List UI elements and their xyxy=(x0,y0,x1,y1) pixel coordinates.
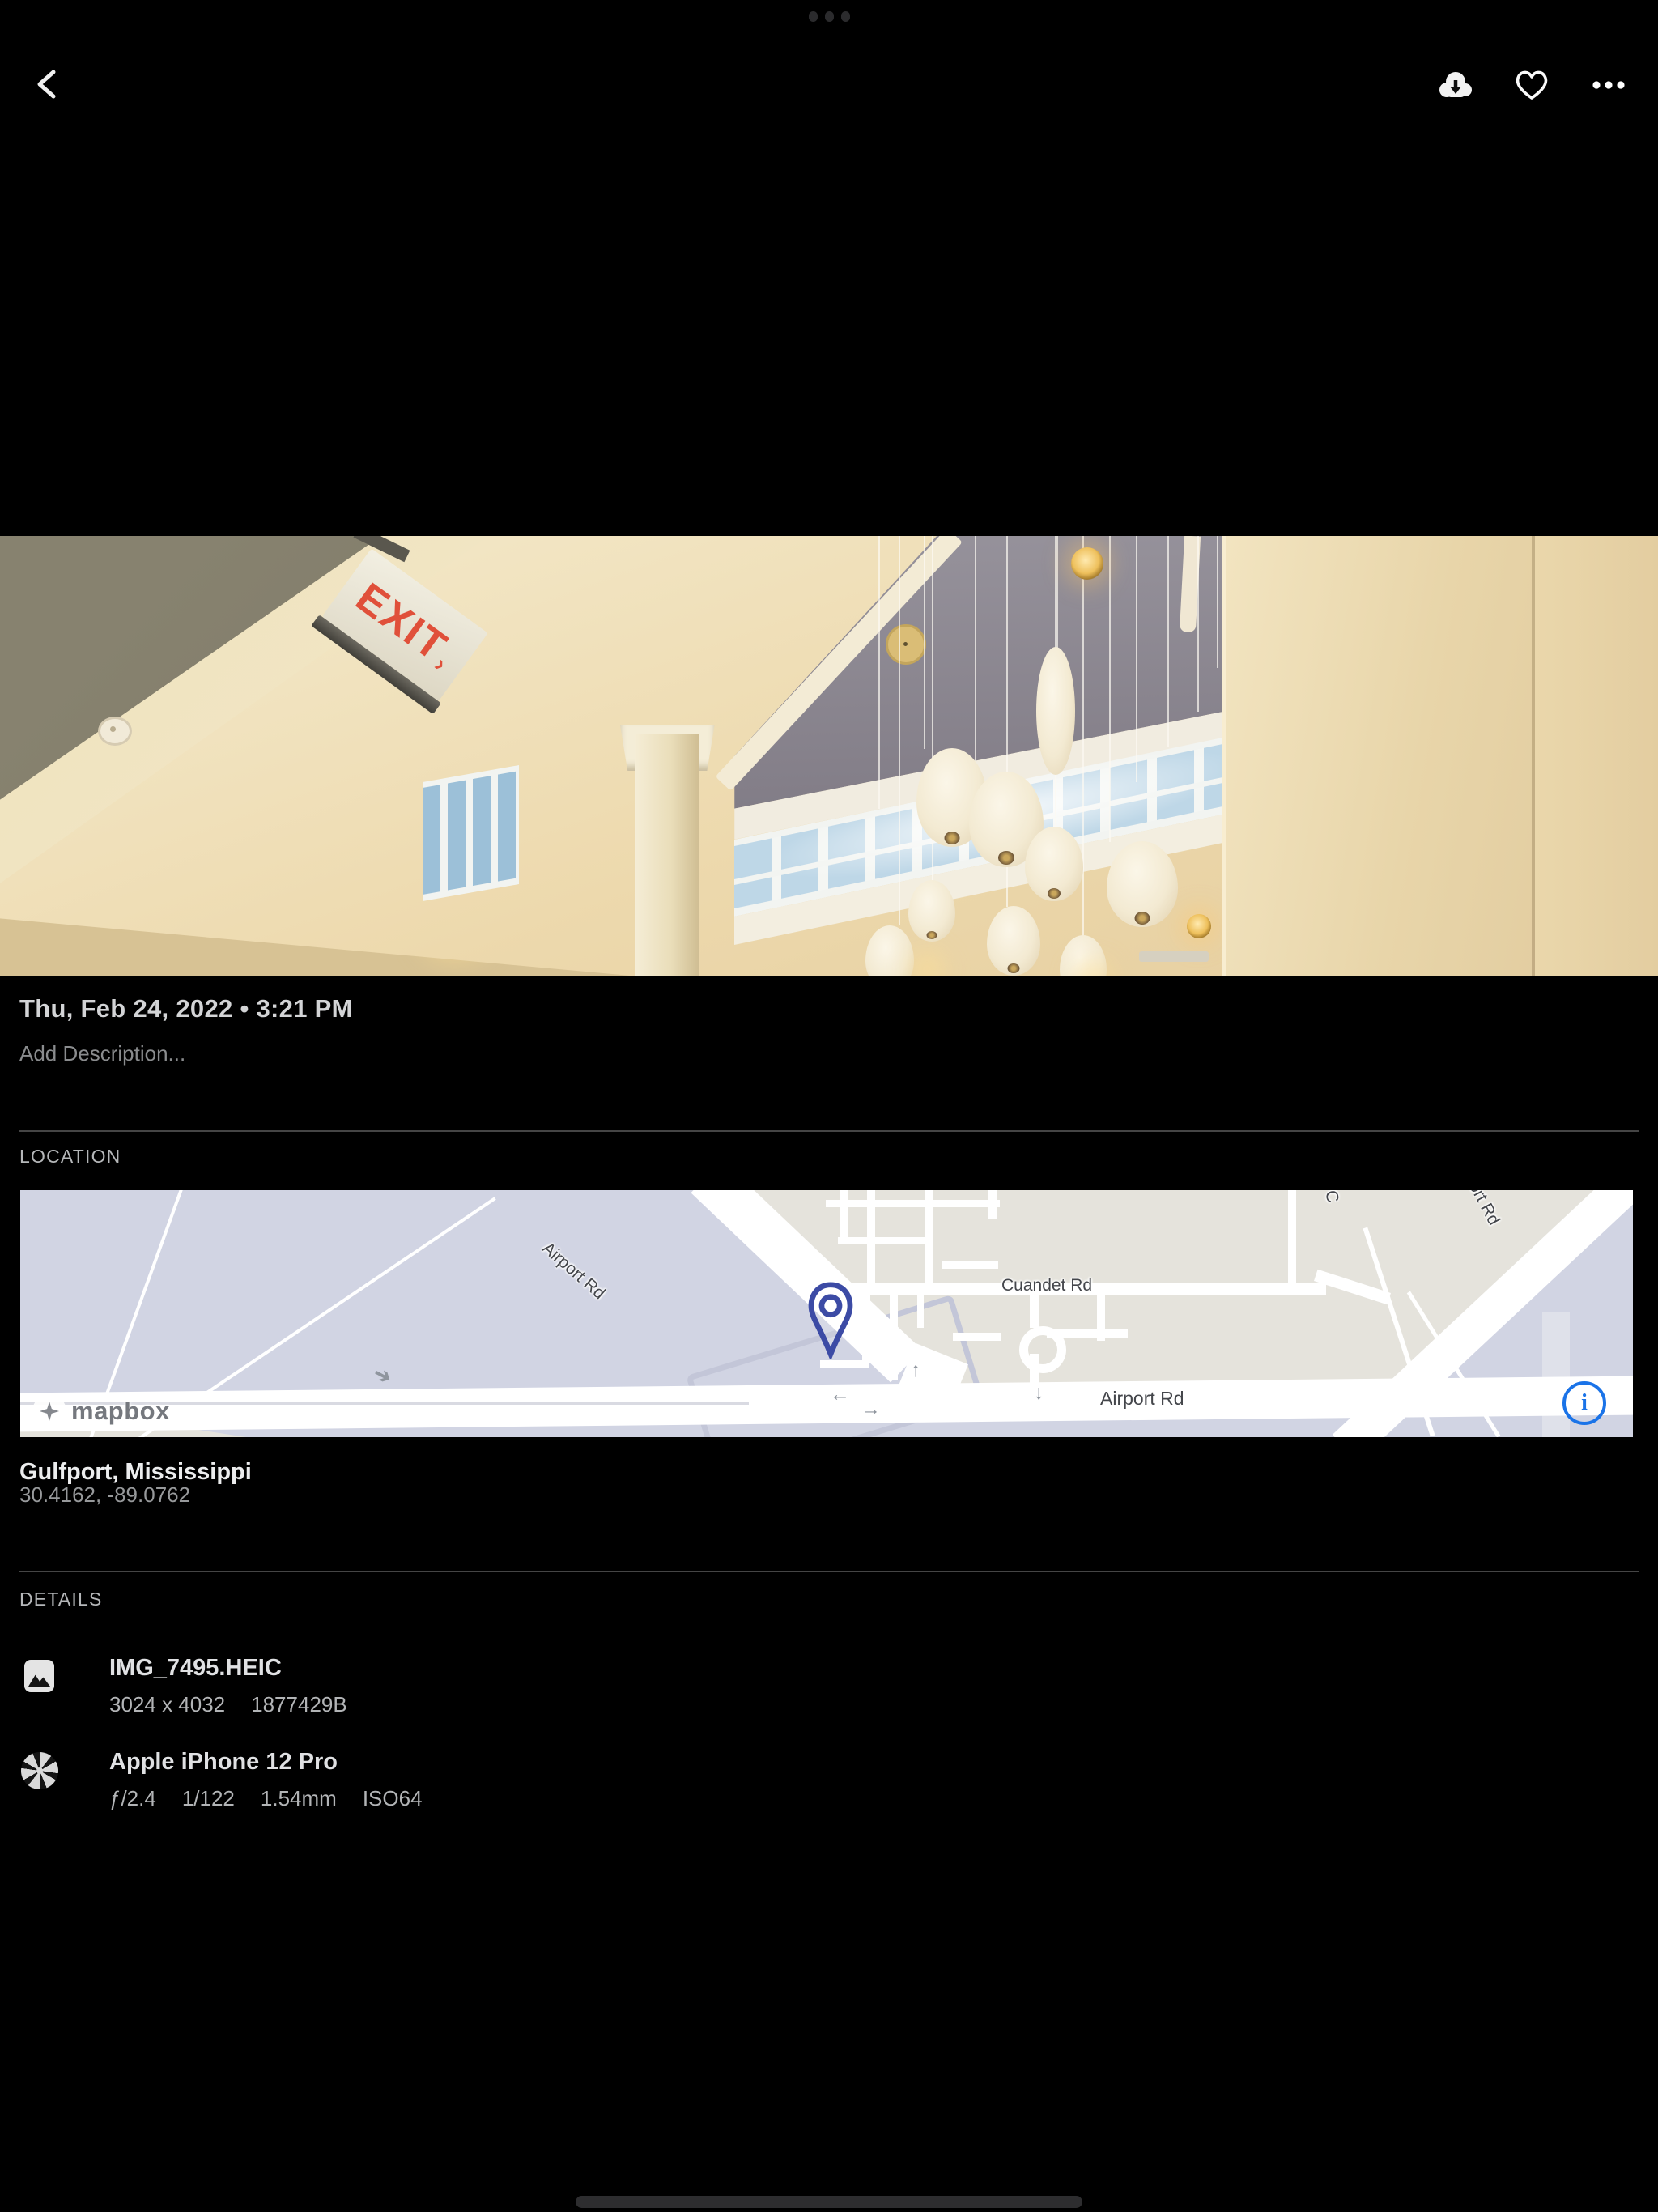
location-coordinates: 30.4162, -89.0762 xyxy=(19,1482,190,1508)
roundabout xyxy=(1019,1326,1066,1373)
camera-iso: ISO64 xyxy=(363,1786,423,1810)
camera-aperture: ƒ/2.4 xyxy=(109,1786,156,1810)
lamp-ring xyxy=(1007,963,1019,973)
info-icon: i xyxy=(1581,1390,1588,1416)
lamp-wire xyxy=(1109,536,1111,842)
camera-meta: ƒ/2.41/1221.54mmISO64 xyxy=(109,1786,449,1811)
street-segment xyxy=(942,1261,998,1269)
map-info-button[interactable]: i xyxy=(1562,1381,1606,1425)
file-dimensions: 3024 x 4032 xyxy=(109,1692,225,1716)
image-file-icon xyxy=(24,1660,54,1692)
home-indicator[interactable] xyxy=(576,2196,1082,2208)
mapbox-logo-icon xyxy=(32,1394,66,1428)
map-path-light xyxy=(1542,1312,1570,1437)
camera-focal: 1.54mm xyxy=(261,1786,337,1810)
back-button[interactable] xyxy=(29,65,68,104)
recessed-light xyxy=(1071,547,1103,580)
street-segment xyxy=(820,1360,869,1368)
street-segment xyxy=(1288,1190,1296,1283)
street-segment xyxy=(890,1295,898,1380)
multitask-dots-icon xyxy=(0,11,1658,22)
lamp-wire xyxy=(1056,536,1058,648)
file-meta: 3024 x 40321877429B xyxy=(109,1692,373,1717)
lamp-wire xyxy=(1167,536,1169,747)
lamp-ring xyxy=(1048,888,1061,899)
pendant-lamp xyxy=(908,880,955,942)
file-name: IMG_7495.HEIC xyxy=(109,1655,282,1682)
aperture-icon xyxy=(21,1752,58,1789)
street-segment xyxy=(838,1237,929,1244)
mapbox-attribution[interactable]: mapbox xyxy=(32,1394,170,1428)
more-options-button[interactable] xyxy=(1589,66,1628,104)
lamp-wire xyxy=(878,536,880,809)
cloud-download-icon xyxy=(1436,66,1475,104)
road-arrow-icon: ↑ xyxy=(911,1359,921,1382)
road-label: Airport Rd xyxy=(538,1239,609,1304)
air-vent xyxy=(1139,951,1209,962)
street-segment xyxy=(840,1190,848,1240)
camera-name: Apple iPhone 12 Pro xyxy=(109,1749,338,1776)
camera-shutter: 1/122 xyxy=(182,1786,235,1810)
pendant-lamp xyxy=(1036,647,1075,775)
photo-date: Thu, Feb 24, 2022 • 3:21 PM xyxy=(19,994,353,1023)
file-size: 1877429B xyxy=(251,1692,347,1716)
lamp-wire xyxy=(975,536,976,772)
road-arrow-icon: ➔ xyxy=(369,1361,396,1390)
divider xyxy=(19,1571,1639,1572)
left-window-strip xyxy=(423,765,519,901)
lamp-wire xyxy=(1082,536,1084,936)
street-segment xyxy=(917,1295,924,1328)
road-label: Airport Rd xyxy=(1100,1388,1184,1410)
chevron-left-icon xyxy=(29,65,68,104)
street-segment xyxy=(826,1200,1000,1207)
location-heading: LOCATION xyxy=(19,1146,121,1168)
description-placeholder[interactable]: Add Description... xyxy=(19,1041,185,1066)
smoke-detector xyxy=(98,717,132,746)
ellipsis-icon xyxy=(1589,66,1628,104)
lamp-wire xyxy=(1217,536,1218,668)
road-arrow-icon: ← xyxy=(830,1383,850,1406)
photo[interactable]: EXIT › xyxy=(0,536,1658,976)
divider xyxy=(19,1130,1639,1132)
photo-far-right-wall xyxy=(1535,536,1658,976)
lamp-wire xyxy=(899,536,900,925)
street-segment xyxy=(1030,1295,1039,1328)
pendant-lamp xyxy=(987,906,1040,976)
download-button[interactable] xyxy=(1436,66,1475,104)
map-pin-icon xyxy=(805,1281,857,1359)
lamp-wire xyxy=(1197,536,1199,712)
column xyxy=(635,734,699,976)
lamp-ring xyxy=(998,851,1014,865)
road-arrow-icon: ↓ xyxy=(1034,1381,1044,1405)
road-label: Cuandet Rd xyxy=(1001,1276,1092,1295)
lamp-ring xyxy=(1135,912,1150,925)
street-segment xyxy=(1097,1295,1105,1341)
favorite-button[interactable] xyxy=(1512,66,1551,104)
lamp-ring xyxy=(927,931,937,939)
road-arrow-icon: → xyxy=(861,1397,881,1421)
ceiling-disc xyxy=(886,624,926,665)
details-heading: DETAILS xyxy=(19,1589,103,1610)
pendant-lamp xyxy=(1107,841,1178,927)
lamp-wire xyxy=(1136,536,1137,782)
street-segment xyxy=(953,1333,1001,1341)
lamp-wire xyxy=(924,536,925,749)
street-segment xyxy=(862,1295,870,1363)
heart-outline-icon xyxy=(1512,66,1551,104)
mapbox-logo-text: mapbox xyxy=(71,1397,170,1426)
location-map[interactable]: Airport Rd Cuandet Rd Airport Rd Airport… xyxy=(20,1190,1633,1437)
photo-detail-screen: EXIT › Thu, Feb 24, 2022 • 3:21 PM Add D… xyxy=(0,0,1658,2212)
lamp-ring xyxy=(944,832,959,844)
